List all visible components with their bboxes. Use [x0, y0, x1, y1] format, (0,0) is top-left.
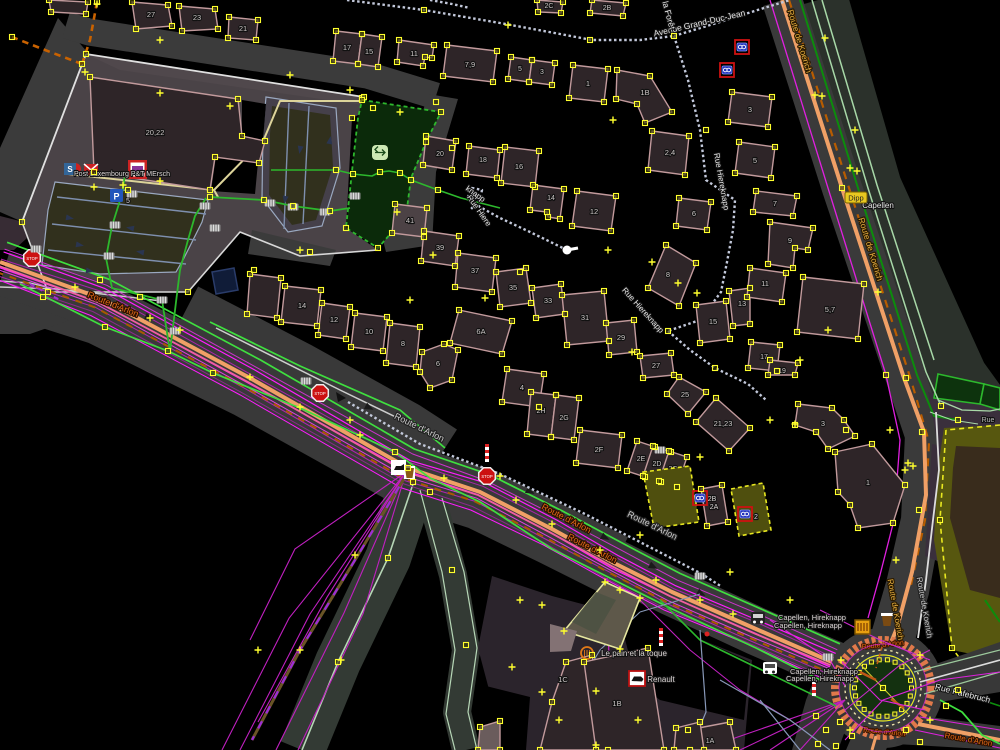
svg-text:16: 16 — [515, 162, 523, 171]
svg-text:27: 27 — [147, 10, 155, 19]
svg-text:20,22: 20,22 — [146, 128, 165, 137]
svg-text:5: 5 — [518, 66, 522, 73]
svg-text:3: 3 — [748, 105, 752, 114]
svg-text:5,7: 5,7 — [825, 305, 835, 314]
svg-text:5: 5 — [753, 156, 757, 165]
svg-text:18: 18 — [479, 157, 487, 164]
svg-text:Capellen, Hireknapp: Capellen, Hireknapp — [786, 674, 854, 683]
svg-text:6A: 6A — [476, 327, 485, 336]
svg-text:15: 15 — [365, 47, 373, 56]
svg-text:2D: 2D — [653, 461, 662, 468]
svg-text:17: 17 — [343, 43, 351, 52]
svg-text:12: 12 — [330, 315, 338, 324]
svg-text:S: S — [67, 165, 73, 174]
svg-text:2B: 2B — [603, 5, 612, 12]
svg-text:17: 17 — [760, 354, 768, 361]
svg-text:11: 11 — [410, 49, 418, 58]
svg-text:31: 31 — [581, 313, 589, 322]
svg-text:27: 27 — [652, 361, 660, 370]
svg-text:41: 41 — [406, 216, 414, 225]
svg-text:2B: 2B — [708, 496, 717, 503]
svg-text:Capellen, Hireknapp: Capellen, Hireknapp — [774, 621, 842, 630]
svg-text:13: 13 — [738, 299, 746, 308]
svg-text:2C: 2C — [545, 3, 554, 10]
svg-text:1B: 1B — [612, 699, 621, 708]
svg-text:5: 5 — [126, 198, 130, 205]
svg-text:10: 10 — [365, 327, 373, 336]
svg-text:4: 4 — [520, 383, 524, 392]
svg-text:1B: 1B — [640, 88, 649, 97]
svg-text:2G: 2G — [559, 415, 568, 422]
svg-text:11: 11 — [761, 279, 769, 288]
svg-text:33: 33 — [544, 296, 552, 305]
svg-text:23: 23 — [193, 13, 201, 22]
svg-text:7,9: 7,9 — [465, 60, 475, 69]
svg-text:Rue: Rue — [982, 417, 995, 424]
svg-text:37: 37 — [471, 266, 479, 275]
svg-text:8: 8 — [401, 339, 405, 348]
svg-text:39: 39 — [436, 243, 444, 252]
svg-text:1A: 1A — [706, 738, 715, 745]
svg-text:1C: 1C — [558, 675, 568, 684]
svg-text:1: 1 — [586, 79, 590, 88]
svg-text:7: 7 — [773, 199, 777, 208]
svg-text:Post Luxembourg P&T MErsch: Post Luxembourg P&T MErsch — [74, 171, 170, 178]
svg-text:21: 21 — [239, 24, 247, 33]
svg-text:8: 8 — [666, 270, 670, 279]
svg-text:Dipp: Dipp — [848, 194, 863, 203]
svg-text:P: P — [113, 192, 119, 202]
svg-text:STOP: STOP — [481, 474, 493, 479]
svg-text:12: 12 — [590, 207, 598, 216]
svg-text:2,4: 2,4 — [665, 148, 675, 157]
svg-text:STOP: STOP — [314, 391, 326, 396]
svg-text:2E: 2E — [637, 456, 646, 463]
svg-text:35: 35 — [509, 283, 517, 292]
svg-text:14: 14 — [547, 195, 555, 202]
svg-text:Le pain et la toque: Le pain et la toque — [601, 649, 667, 658]
svg-text:1: 1 — [866, 478, 870, 487]
svg-text:21,23: 21,23 — [714, 419, 733, 428]
svg-text:29: 29 — [617, 333, 625, 342]
svg-text:2: 2 — [754, 514, 758, 521]
svg-text:6: 6 — [692, 209, 696, 218]
svg-text:2F: 2F — [595, 445, 604, 454]
svg-text:3: 3 — [540, 69, 544, 76]
svg-text:2A: 2A — [710, 504, 719, 511]
svg-text:3: 3 — [821, 419, 825, 428]
svg-text:9: 9 — [788, 236, 792, 245]
svg-text:Renault: Renault — [647, 675, 675, 684]
svg-text:20: 20 — [436, 151, 444, 158]
svg-text:6: 6 — [436, 359, 440, 368]
svg-text:15: 15 — [709, 317, 717, 326]
svg-text:STOP: STOP — [26, 256, 38, 261]
svg-text:25: 25 — [681, 390, 689, 399]
svg-text:14: 14 — [298, 301, 306, 310]
